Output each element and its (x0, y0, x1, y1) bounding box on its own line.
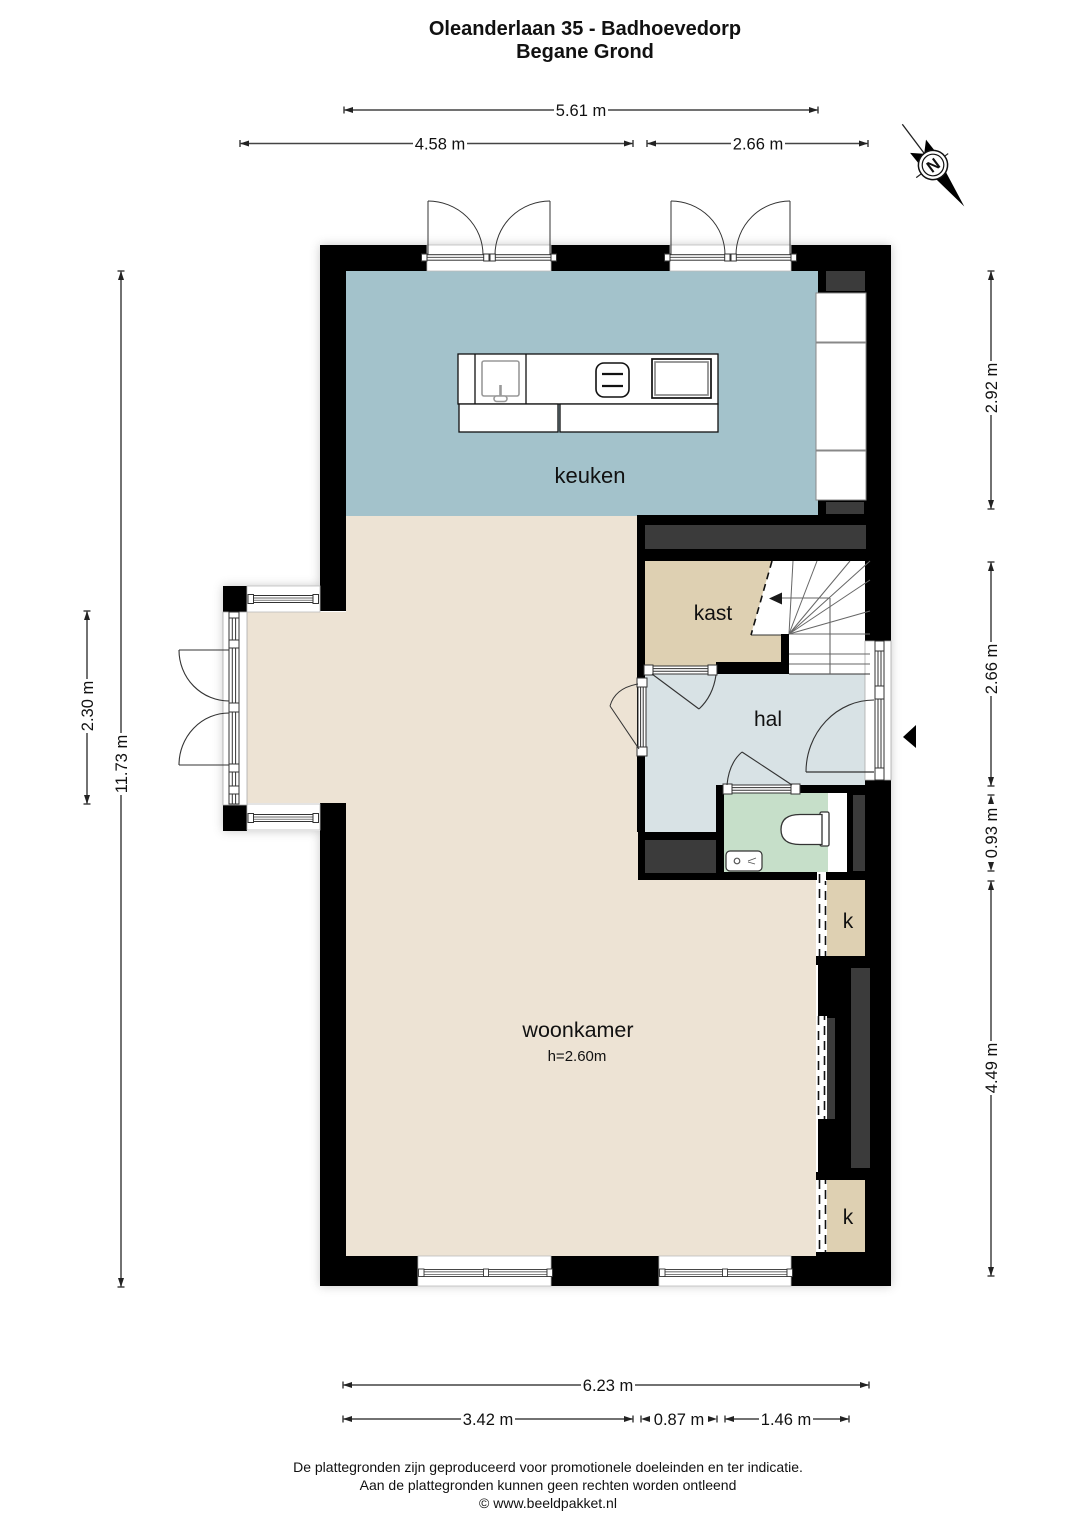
svg-text:De plattegronden zijn geproduc: De plattegronden zijn geproduceerd voor … (293, 1459, 803, 1475)
svg-text:1.46 m: 1.46 m (761, 1411, 811, 1429)
svg-text:3.42 m: 3.42 m (463, 1411, 513, 1429)
svg-text:© www.beeldpakket.nl: © www.beeldpakket.nl (479, 1495, 617, 1511)
svg-text:5.61 m: 5.61 m (556, 102, 606, 120)
svg-text:woonkamer: woonkamer (521, 1018, 633, 1042)
svg-text:2.66 m: 2.66 m (733, 136, 783, 154)
svg-text:h=2.60m: h=2.60m (548, 1048, 607, 1065)
svg-text:k: k (843, 1206, 854, 1229)
svg-text:2.30 m: 2.30 m (79, 681, 97, 731)
svg-text:4.58 m: 4.58 m (415, 136, 465, 154)
svg-text:kast: kast (694, 602, 733, 625)
svg-text:Oleanderlaan 35 - Badhoevedorp: Oleanderlaan 35 - Badhoevedorp (429, 18, 741, 40)
svg-text:2.66 m: 2.66 m (983, 644, 1001, 694)
svg-text:11.73 m: 11.73 m (113, 735, 131, 793)
svg-text:hal: hal (754, 708, 782, 731)
svg-text:2.92 m: 2.92 m (983, 363, 1001, 413)
svg-text:6.23 m: 6.23 m (583, 1377, 633, 1395)
svg-text:4.49 m: 4.49 m (983, 1043, 1001, 1093)
svg-text:0.87 m: 0.87 m (654, 1411, 704, 1429)
svg-text:k: k (843, 910, 854, 933)
svg-text:Aan de plattegronden kunnen ge: Aan de plattegronden kunnen geen rechten… (360, 1477, 737, 1493)
svg-text:Begane Grond: Begane Grond (516, 41, 654, 63)
svg-text:keuken: keuken (555, 463, 626, 488)
svg-text:0.93 m: 0.93 m (983, 808, 1001, 858)
